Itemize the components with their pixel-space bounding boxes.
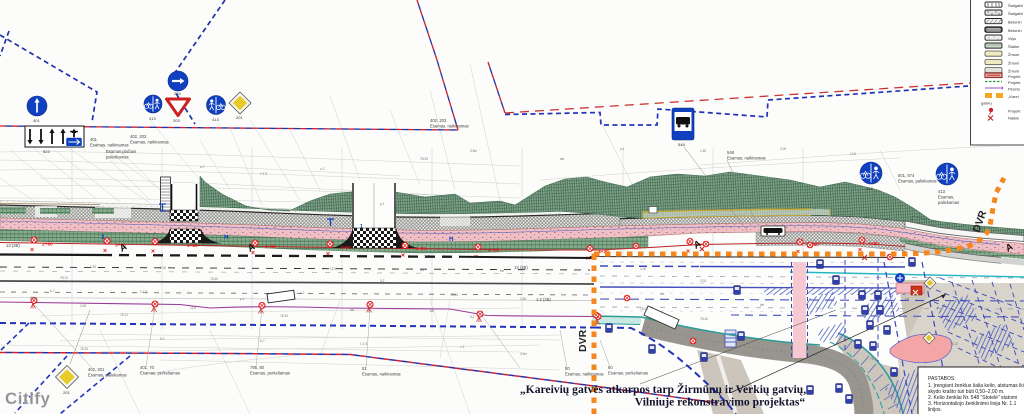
svg-text:2.00: 2.00 — [160, 266, 166, 270]
svg-text:13 (2B): 13 (2B) — [6, 243, 20, 248]
svg-text:78.12: 78.12 — [640, 307, 648, 311]
svg-text:Esamas, naikinamas: Esamas, naikinamas — [565, 371, 604, 376]
svg-text:gatvių: gatvių — [981, 101, 992, 106]
svg-text:78.25: 78.25 — [80, 347, 88, 351]
svg-text:Esamas, paliekamas: Esamas, paliekamas — [898, 178, 937, 183]
svg-text:413: 413 — [866, 186, 873, 191]
svg-text:5.2: 5.2 — [470, 315, 475, 319]
svg-text:Esamas, naikinamas: Esamas, naikinamas — [130, 139, 169, 144]
svg-text:kel: kel — [905, 297, 909, 301]
svg-text:Projekt: Projekt — [1008, 74, 1021, 79]
svg-text:401, 70: 401, 70 — [140, 365, 155, 370]
svg-text:402, 201: 402, 201 — [88, 367, 105, 372]
svg-text:12.5: 12.5 — [330, 267, 336, 271]
svg-text:Betonin: Betonin — [1008, 28, 1022, 33]
svg-text:Vilniuje rekonstravimo projekt: Vilniuje rekonstravimo projektas“ — [635, 396, 806, 409]
svg-text:12.5: 12.5 — [700, 279, 706, 283]
svg-text:Esamas, perkeliamas: Esamas, perkeliamas — [140, 370, 180, 375]
svg-text:PASTABOS:: PASTABOS: — [928, 376, 956, 382]
svg-text:402, 203: 402, 203 — [430, 118, 447, 123]
svg-text:v-2: v-2 — [320, 167, 325, 171]
svg-text:401: 401 — [90, 137, 98, 142]
svg-text:1: 1 — [360, 224, 363, 230]
svg-text:201: 201 — [63, 390, 70, 395]
svg-text:Betonin: Betonin — [1008, 20, 1022, 25]
svg-text:b-7: b-7 — [260, 339, 265, 343]
svg-text:78.25: 78.25 — [420, 157, 428, 161]
svg-text:78.40: 78.40 — [210, 277, 218, 281]
svg-text:Žmoni: Žmoni — [1008, 52, 1019, 57]
svg-text:12.5: 12.5 — [850, 152, 856, 156]
svg-text:Naikin: Naikin — [1008, 116, 1019, 121]
svg-text:2.00: 2.00 — [640, 267, 646, 271]
svg-text:p-1: p-1 — [240, 297, 245, 301]
svg-text:Štatini: Štatini — [1008, 44, 1019, 49]
svg-text:kel: kel — [500, 269, 504, 273]
svg-text:DVR: DVR — [577, 329, 589, 352]
svg-text:2.00: 2.00 — [80, 304, 86, 308]
svg-text:523: 523 — [43, 149, 50, 154]
svg-text:1:1.5: 1:1.5 — [360, 342, 367, 346]
svg-text:Esamas, naikinamas: Esamas, naikinamas — [362, 371, 401, 376]
svg-text:Esamas, perkeliamas: Esamas, perkeliamas — [250, 370, 290, 375]
svg-text:548: 548 — [727, 150, 735, 155]
svg-text:3+20: 3+20 — [187, 243, 198, 249]
svg-text:p-1: p-1 — [380, 202, 385, 206]
svg-text:795, 80: 795, 80 — [250, 365, 265, 370]
svg-text:Esamas,: Esamas, — [938, 194, 954, 199]
svg-text:3.5m: 3.5m — [30, 296, 37, 300]
svg-text:4+80: 4+80 — [868, 241, 879, 247]
svg-text:78.40: 78.40 — [870, 357, 878, 361]
svg-text:3.5m: 3.5m — [470, 149, 477, 153]
svg-text:H: H — [224, 235, 228, 241]
svg-text:401: 401 — [33, 118, 40, 123]
svg-text:1:1.5: 1:1.5 — [260, 172, 267, 176]
svg-text:13 (2B): 13 (2B) — [514, 265, 528, 270]
svg-text:Esamas, perkeliamas: Esamas, perkeliamas — [608, 370, 648, 375]
svg-text:linijos.: linijos. — [928, 407, 942, 413]
svg-text:v-2: v-2 — [300, 291, 305, 295]
svg-text:Esamas, naikinamas: Esamas, naikinamas — [430, 123, 469, 128]
svg-text:413: 413 — [938, 189, 946, 194]
svg-text:Šaligatvi: Šaligatvi — [1008, 3, 1023, 8]
svg-text:3+40: 3+40 — [265, 244, 276, 250]
svg-text:1.50: 1.50 — [700, 149, 706, 153]
svg-text:203: 203 — [173, 118, 180, 123]
svg-text:1.50: 1.50 — [520, 297, 526, 301]
svg-text:H: H — [449, 237, 453, 243]
svg-text:78.12: 78.12 — [120, 313, 128, 317]
svg-text:v-2: v-2 — [460, 345, 465, 349]
svg-text:atv: atv — [660, 292, 665, 296]
svg-text:2+80: 2+80 — [42, 242, 53, 248]
svg-text:5.2: 5.2 — [380, 279, 385, 283]
svg-text:5.2: 5.2 — [160, 337, 165, 341]
svg-text:Citify: Citify — [5, 389, 51, 408]
svg-text:Pėsčio: Pėsčio — [1008, 87, 1021, 92]
svg-text:51: 51 — [362, 366, 367, 371]
svg-text:b-7: b-7 — [50, 289, 55, 293]
svg-text:kel: kel — [760, 303, 764, 307]
svg-text:Esamas, naikinamas: Esamas, naikinamas — [727, 155, 766, 160]
svg-text:1:1.5: 1:1.5 — [140, 290, 147, 294]
svg-text:atv: atv — [350, 308, 355, 312]
svg-text:2.00: 2.00 — [780, 147, 786, 151]
svg-text:Projekt: Projekt — [1008, 109, 1021, 114]
svg-text:palenkamas: palenkamas — [106, 154, 129, 159]
svg-text:paliekamas: paliekamas — [938, 200, 959, 205]
svg-text:78.25: 78.25 — [450, 293, 458, 297]
svg-text:Esamas, naikinamas: Esamas, naikinamas — [90, 142, 129, 147]
svg-text:Esamas, paliekamas: Esamas, paliekamas — [88, 372, 127, 377]
svg-text:413: 413 — [149, 116, 156, 121]
svg-text:1.50: 1.50 — [440, 205, 446, 209]
svg-text:413: 413 — [212, 117, 219, 122]
svg-text:Šaligatvi: Šaligatvi — [1008, 11, 1023, 16]
svg-text:„Kareivių gatvės atkarpos tarp: „Kareivių gatvės atkarpos tarp Žirmūnų i… — [520, 382, 806, 396]
svg-text:1.50: 1.50 — [90, 265, 96, 269]
svg-text:3.5m: 3.5m — [520, 352, 527, 356]
svg-text:78.12: 78.12 — [950, 342, 958, 346]
svg-text:4+00: 4+00 — [488, 248, 499, 254]
svg-text:204: 204 — [174, 91, 181, 96]
svg-text:Esamas plačiais: Esamas plačiais — [106, 149, 136, 154]
svg-text:„Karei: „Karei — [1008, 94, 1019, 99]
svg-text:1:2 (2B): 1:2 (2B) — [536, 297, 552, 302]
svg-text:402, 203: 402, 203 — [130, 134, 147, 139]
svg-text:50: 50 — [565, 366, 570, 371]
svg-text:12.5: 12.5 — [190, 306, 196, 310]
svg-text:b-7: b-7 — [200, 165, 205, 169]
svg-text:atv: atv — [420, 268, 425, 272]
svg-text:78.40: 78.40 — [700, 317, 708, 321]
svg-text:201: 201 — [236, 115, 243, 120]
svg-text:548: 548 — [678, 142, 685, 147]
svg-text:78.40: 78.40 — [280, 314, 288, 318]
svg-text:78.12: 78.12 — [60, 276, 68, 280]
svg-text:Žmoni: Žmoni — [1008, 69, 1019, 74]
svg-text:1:2: 1:2 — [424, 254, 430, 259]
svg-text:kel: kel — [430, 309, 434, 313]
svg-text:Žmoni: Žmoni — [1008, 61, 1019, 66]
svg-text:p-1: p-1 — [620, 147, 625, 151]
svg-text:atv: atv — [560, 157, 565, 161]
svg-text:Veja: Veja — [1008, 36, 1017, 41]
svg-text:Projekt: Projekt — [1008, 80, 1021, 85]
svg-text:501, 574: 501, 574 — [898, 173, 915, 178]
svg-text:3+80: 3+80 — [415, 246, 426, 252]
svg-text:60: 60 — [608, 365, 613, 370]
svg-text:3+60: 3+60 — [340, 245, 351, 251]
